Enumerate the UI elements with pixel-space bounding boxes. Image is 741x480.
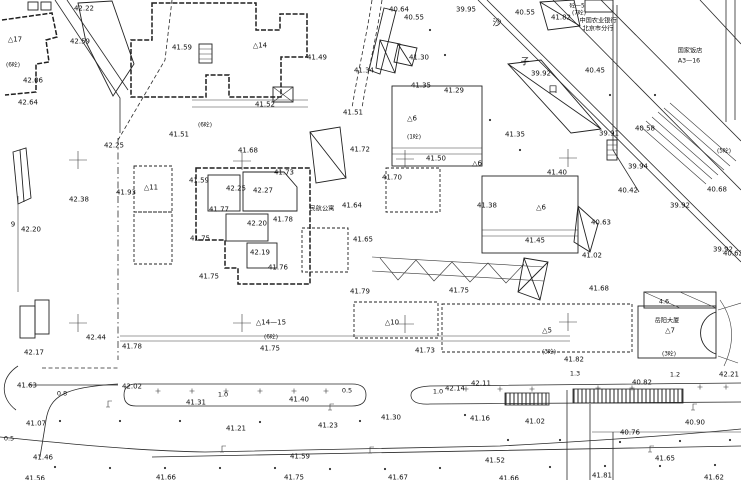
building-id-label: △14—15: [256, 319, 286, 327]
spot-elevation-label: 41.52: [485, 457, 505, 465]
point-feature-dot: [359, 420, 361, 422]
survey-grid-cross: [559, 313, 577, 331]
spot-elevation-label: 41.75: [449, 287, 469, 295]
map-labels: 42.2242.5941.5942.0642.6440.6440.5539.95…: [4, 2, 741, 480]
building-id-label: 9: [11, 221, 15, 229]
point-feature-dot: [439, 467, 441, 469]
point-feature-dot: [464, 414, 466, 416]
survey-plan-sheet: 42.2242.5941.5942.0642.6440.6440.5539.95…: [0, 0, 741, 480]
dimension-label: 4.6: [659, 298, 669, 306]
stairs-icon: [199, 44, 212, 63]
point-feature-dot: [429, 29, 431, 31]
hatched-wall: [573, 389, 683, 403]
surface-plus-mark: [258, 389, 263, 394]
spot-elevation-label: 42.44: [86, 334, 107, 342]
building-id-label: △10: [385, 319, 399, 327]
stairs-icon: [607, 140, 617, 160]
survey-grid-cross: [559, 149, 577, 167]
spot-elevation-label: 39.95: [456, 6, 476, 14]
surface-plus-mark: [498, 387, 503, 392]
story-material-tag: (6砼): [198, 121, 212, 129]
spot-elevation-label: 41.45: [525, 237, 545, 245]
lamp-post-icon: [648, 446, 654, 452]
spot-elevation-label: 41.59: [172, 44, 192, 52]
spot-elevation-label: 41.70: [382, 174, 402, 182]
spot-elevation-label: 40.58: [635, 125, 655, 133]
spot-elevation-label: 41.40: [547, 169, 567, 177]
point-feature-dot: [559, 439, 561, 441]
spot-elevation-label: 41.75: [199, 273, 219, 281]
spot-elevation-label: 41.35: [411, 82, 431, 90]
point-feature-dot: [659, 465, 661, 467]
surface-plus-mark: [698, 385, 703, 390]
surface-plus-mark: [324, 389, 329, 394]
spot-elevation-label: 41.77: [209, 206, 229, 214]
spot-elevation-label: 41.40: [289, 396, 309, 404]
point-feature-dot: [274, 467, 276, 469]
spot-elevation-label: 39.94: [628, 163, 649, 171]
spot-elevation-label: 41.30: [381, 414, 401, 422]
story-material-tag: (6砼): [264, 333, 278, 341]
dimension-label: 0.8: [57, 390, 67, 398]
spot-elevation-label: 41.82: [564, 356, 584, 364]
street-name-char: 子: [520, 57, 529, 68]
point-feature-dot: [329, 468, 331, 470]
survey-grid-cross: [233, 314, 251, 332]
spot-elevation-label: 42.22: [74, 5, 94, 13]
spot-elevation-label: 41.76: [268, 264, 289, 272]
point-feature-dot: [489, 119, 491, 121]
dimension-label: 1.0: [218, 391, 228, 399]
point-feature-dot: [444, 54, 446, 56]
spot-elevation-label: 40.45: [585, 67, 605, 75]
place-name-label: 中国农业银行: [579, 17, 616, 25]
point-feature-dot: [549, 466, 551, 468]
building-id-label: △6: [472, 160, 482, 168]
spot-elevation-label: 42.21: [719, 371, 739, 379]
place-name-label: 民航公寓: [310, 205, 335, 213]
spot-elevation-label: 41.34: [354, 67, 375, 75]
spot-elevation-label: 41.56: [25, 475, 46, 480]
spot-elevation-label: 41.73: [274, 169, 294, 177]
spot-elevation-label: 40.76: [620, 429, 641, 437]
surface-plus-mark: [156, 389, 161, 394]
spot-elevation-label: 41.63: [17, 382, 37, 390]
spot-elevation-label: 42.25: [226, 185, 246, 193]
story-material-tag: (7砼): [572, 9, 586, 17]
spot-elevation-label: 40.55: [515, 9, 535, 17]
spot-elevation-label: 42.25: [104, 142, 124, 150]
place-name-label: 北京市分行: [583, 25, 614, 33]
spot-elevation-label: 41.49: [307, 54, 327, 62]
point-feature-dot: [609, 94, 611, 96]
point-feature-dot: [654, 94, 656, 96]
story-material-tag: (6砼): [6, 61, 20, 69]
spot-elevation-label: 41.07: [26, 420, 46, 428]
spot-elevation-label: 41.64: [342, 202, 363, 210]
place-name-label: A3—16: [678, 58, 700, 65]
surface-plus-mark: [292, 389, 297, 394]
building-id-label: △14: [253, 42, 268, 50]
spot-elevation-label: 42.59: [70, 38, 90, 46]
survey-grid-cross: [69, 314, 87, 332]
spot-elevation-label: 40.42: [618, 187, 638, 195]
spot-elevation-label: 41.31: [186, 399, 206, 407]
spot-elevation-label: 41.51: [343, 109, 363, 117]
spot-elevation-label: 41.29: [444, 87, 464, 95]
spot-elevation-label: 39.92: [670, 202, 690, 210]
spot-elevation-label: 42.20: [21, 226, 41, 234]
story-material-tag: (3砼): [542, 348, 556, 356]
spot-elevation-label: 41.59: [290, 453, 310, 461]
spot-elevation-label: 40.55: [404, 14, 424, 22]
spot-elevation-label: 41.66: [156, 474, 177, 480]
spot-elevation-label: 41.30: [409, 54, 429, 62]
place-name-label: 岳阳大厦: [655, 317, 680, 325]
surface-plus-mark: [724, 385, 729, 390]
spot-elevation-label: 41.62: [704, 474, 724, 480]
dimension-label: 1.0: [433, 388, 443, 396]
point-feature-dot: [384, 468, 386, 470]
spot-elevation-label: 41.02: [582, 252, 602, 260]
spot-elevation-label: 41.38: [477, 202, 497, 210]
street-name-char: 沙: [492, 18, 501, 29]
spot-elevation-label: 42.14: [445, 385, 466, 393]
point-feature-dot: [619, 441, 621, 443]
lamp-post-icon: [106, 401, 112, 407]
spot-elevation-label: 42.27: [253, 187, 273, 195]
spot-elevation-label: 41.93: [116, 189, 136, 197]
spot-elevation-label: 42.20: [247, 220, 267, 228]
dimension-label: 0.5: [4, 435, 14, 443]
dimension-label: 1.2: [670, 371, 680, 379]
spot-elevation-label: 41.68: [589, 285, 609, 293]
spot-elevation-label: 40.82: [632, 379, 652, 387]
point-feature-dot: [59, 420, 61, 422]
point-feature-dot: [519, 149, 521, 151]
story-material-tag: 砼—5: [569, 2, 585, 10]
story-material-tag: (5砼): [717, 147, 731, 155]
point-feature-dot: [109, 467, 111, 469]
point-feature-dot: [714, 464, 716, 466]
grid-cross-marks: [69, 149, 577, 333]
building-id-label: △6: [536, 204, 546, 212]
point-feature-dot: [179, 420, 181, 422]
building-id-label: △7: [665, 327, 675, 335]
lamp-post-icon: [328, 404, 334, 410]
point-feature-dot: [507, 439, 509, 441]
point-feature-dot: [119, 420, 121, 422]
building-id-label: △11: [144, 184, 158, 192]
spot-elevation-label: 40.90: [685, 419, 705, 427]
building-id-label: △5: [542, 327, 552, 335]
point-feature-dot: [54, 466, 56, 468]
survey-grid-cross: [69, 151, 87, 169]
spot-elevation-label: 42.11: [471, 380, 491, 388]
spot-elevation-label: 41.73: [415, 347, 435, 355]
building-id-label: △6: [407, 115, 417, 123]
spot-elevation-label: 41.72: [350, 146, 370, 154]
lamp-post-icon: [691, 404, 697, 410]
spot-elevation-label: 40.68: [707, 186, 727, 194]
story-material-tag: (3砼): [662, 350, 676, 358]
surface-plus-mark: [530, 387, 535, 392]
surface-plus-mark: [190, 389, 195, 394]
dimension-label: 1.3: [570, 370, 580, 378]
spot-elevation-label: 42.64: [18, 99, 39, 107]
point-feature-dot: [164, 467, 166, 469]
spot-elevation-label: 41.46: [33, 454, 54, 462]
lamp-post-icon: [220, 446, 226, 452]
street-name-char: 口: [548, 86, 557, 96]
spot-elevation-label: 41.78: [273, 216, 293, 224]
lamp-post-icon: [368, 447, 374, 453]
spot-elevation-label: 42.19: [250, 249, 270, 257]
point-feature-dot: [259, 421, 261, 423]
spot-elevation-label: 40.64: [389, 6, 410, 14]
spot-elevation-label: 42.06: [23, 77, 44, 85]
spot-elevation-label: 41.16: [470, 415, 491, 423]
map-canvas: 42.2242.5941.5942.0642.6440.6440.5539.95…: [0, 0, 741, 480]
spot-elevation-label: 41.65: [655, 455, 675, 463]
spot-elevation-label: 41.21: [226, 425, 246, 433]
spot-elevation-label: 41.52: [255, 101, 275, 109]
place-name-label: 国家饭店: [678, 47, 703, 55]
spot-elevation-label: 41.51: [169, 131, 189, 139]
survey-grid-cross: [396, 150, 414, 168]
spot-elevation-label: 42.02: [122, 383, 142, 391]
spot-elevation-label: 41.35: [505, 131, 525, 139]
spot-elevation-label: 41.66: [499, 475, 520, 480]
story-material-tag: (1砼): [407, 133, 421, 141]
spot-elevation-label: 41.75: [190, 235, 210, 243]
spot-elevation-label: 41.59: [189, 177, 209, 185]
spot-elevation-label: 41.50: [426, 155, 446, 163]
dimension-label: 0.5: [342, 387, 352, 395]
point-feature-dot: [729, 439, 731, 441]
spot-elevation-label: 41.82: [551, 14, 571, 22]
spot-elevation-label: 41.68: [238, 147, 258, 155]
point-feature-dot: [219, 467, 221, 469]
spot-elevation-label: 42.38: [69, 196, 89, 204]
spot-elevation-label: 40.62: [723, 250, 741, 258]
spot-elevation-label: 39.91: [599, 130, 619, 138]
spot-elevation-label: 39.92: [531, 70, 551, 78]
spot-elevation-label: 41.78: [122, 343, 142, 351]
spot-elevation-label: 41.81: [592, 472, 612, 480]
spot-elevation-label: 41.75: [260, 345, 280, 353]
map-symbols: [54, 29, 731, 470]
hatched-wall: [505, 393, 549, 405]
building-outlines: [2, 0, 741, 405]
point-feature-dot: [604, 465, 606, 467]
spot-elevation-label: 41.67: [388, 474, 408, 480]
spot-elevation-label: 41.75: [284, 474, 304, 480]
spot-elevation-label: 41.79: [350, 288, 370, 296]
building-id-label: △17: [8, 36, 22, 44]
point-feature-dot: [679, 440, 681, 442]
spot-elevation-label: 41.02: [525, 418, 545, 426]
spot-elevation-label: 41.23: [318, 422, 338, 430]
spot-elevation-label: 40.63: [591, 219, 611, 227]
spot-elevation-label: 42.17: [24, 349, 44, 357]
spot-elevation-label: 41.65: [353, 236, 373, 244]
